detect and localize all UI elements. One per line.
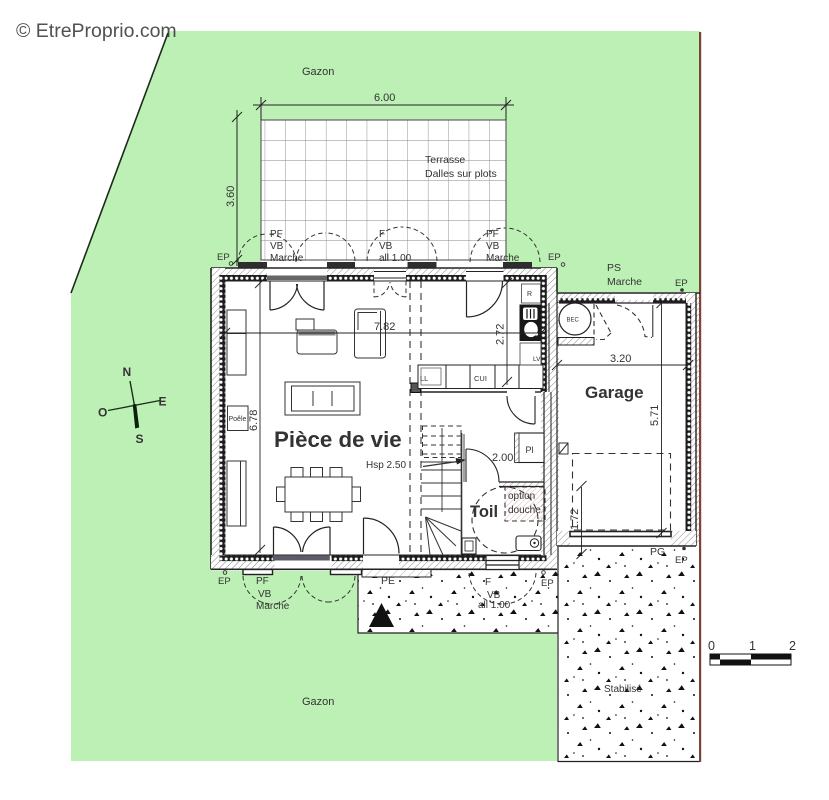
svg-text:Marche: Marche xyxy=(256,601,290,612)
svg-text:Toil: Toil xyxy=(470,503,498,521)
svg-text:Poêle: Poêle xyxy=(229,416,247,423)
svg-text:F: F xyxy=(485,577,491,588)
svg-text:R: R xyxy=(527,291,532,298)
svg-text:2: 2 xyxy=(789,639,796,653)
svg-text:0: 0 xyxy=(708,639,715,653)
svg-text:EP: EP xyxy=(675,278,688,289)
svg-text:PE: PE xyxy=(381,575,395,587)
svg-text:LV: LV xyxy=(533,356,541,363)
svg-text:N: N xyxy=(123,365,132,379)
svg-text:all 1.00: all 1.00 xyxy=(379,253,412,264)
svg-text:Gazon: Gazon xyxy=(302,696,334,708)
svg-text:EP: EP xyxy=(541,578,554,589)
svg-text:EP: EP xyxy=(548,252,561,263)
svg-text:VB: VB xyxy=(258,589,272,600)
svg-text:Hsp 2.50: Hsp 2.50 xyxy=(366,460,406,471)
svg-text:Pl: Pl xyxy=(526,445,534,455)
svg-text:Marche: Marche xyxy=(270,253,304,264)
svg-text:F: F xyxy=(379,229,385,240)
svg-text:EP: EP xyxy=(675,555,688,566)
svg-text:6.00: 6.00 xyxy=(374,92,395,104)
svg-text:LL: LL xyxy=(420,374,428,383)
svg-text:Terrasse: Terrasse xyxy=(425,154,465,166)
svg-text:E: E xyxy=(159,395,167,409)
svg-text:EP: EP xyxy=(217,252,230,263)
svg-text:Stabilisé: Stabilisé xyxy=(604,684,642,695)
svg-text:PF: PF xyxy=(486,229,499,240)
svg-text:VB: VB xyxy=(270,241,284,252)
svg-text:EP: EP xyxy=(218,576,231,587)
svg-text:PG: PG xyxy=(650,546,665,558)
svg-text:VB: VB xyxy=(486,241,500,252)
svg-text:CUI: CUI xyxy=(474,374,487,383)
svg-text:PS: PS xyxy=(607,262,621,274)
svg-text:5.71: 5.71 xyxy=(649,405,661,426)
svg-text:option: option xyxy=(508,491,535,502)
svg-text:3.20: 3.20 xyxy=(610,353,631,365)
svg-text:© EtreProprio.com: © EtreProprio.com xyxy=(16,20,177,42)
svg-text:6.78: 6.78 xyxy=(248,410,260,431)
svg-text:Pièce de vie: Pièce de vie xyxy=(274,427,402,452)
svg-text:O: O xyxy=(98,406,107,420)
svg-text:all 1.00: all 1.00 xyxy=(478,600,511,611)
svg-text:Dalles sur plots: Dalles sur plots xyxy=(425,168,497,180)
svg-text:S: S xyxy=(136,432,144,446)
svg-text:2.00: 2.00 xyxy=(492,452,513,464)
svg-text:VB: VB xyxy=(379,241,393,252)
svg-text:PF: PF xyxy=(270,229,283,240)
svg-text:Gazon: Gazon xyxy=(302,66,334,78)
svg-text:1.72: 1.72 xyxy=(569,509,581,530)
svg-text:Marche: Marche xyxy=(607,276,642,288)
svg-text:2.72: 2.72 xyxy=(495,324,507,345)
svg-text:Garage: Garage xyxy=(585,383,644,402)
svg-text:BEC: BEC xyxy=(567,318,580,324)
svg-text:Marche: Marche xyxy=(486,253,520,264)
svg-text:3.60: 3.60 xyxy=(225,186,237,207)
svg-text:1: 1 xyxy=(749,639,756,653)
svg-text:PF: PF xyxy=(256,576,269,587)
svg-text:7.82: 7.82 xyxy=(374,321,395,333)
svg-text:douche: douche xyxy=(508,505,541,516)
